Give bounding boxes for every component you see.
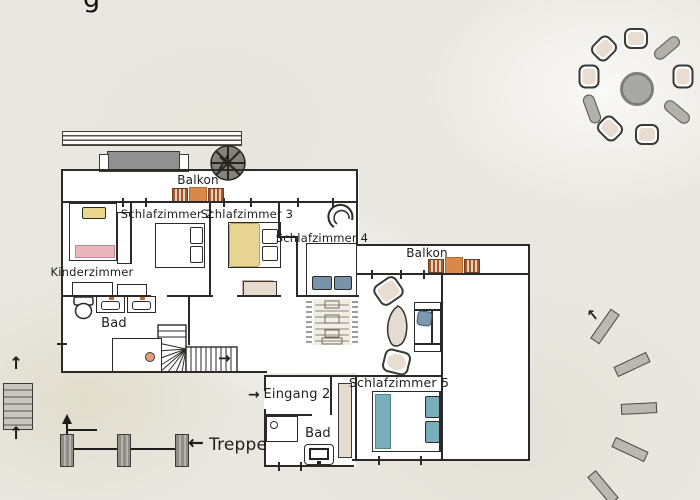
wall (528, 244, 530, 461)
window-tick (278, 462, 280, 471)
woven-rug (306, 299, 358, 345)
label-bad-lower: Bad (305, 426, 331, 441)
fence-post (175, 434, 189, 467)
s3-yellow-blanket (229, 223, 260, 267)
window-tick (145, 198, 147, 207)
label-schlafzimmer-3: Schlafzimmer 3 (201, 207, 293, 221)
wall (61, 371, 267, 373)
label-schlafzimmer-2: Schlafzimmer 2 (121, 207, 213, 221)
s5-pillow-1 (425, 396, 440, 418)
s2-pillow-2 (190, 246, 203, 263)
wall (296, 295, 359, 297)
s5-pillow-2 (425, 421, 440, 443)
window-tick (378, 456, 380, 465)
wardrobe (338, 383, 352, 458)
garden-chair (579, 65, 600, 89)
window-tick (250, 198, 252, 207)
s4-pillow-1 (312, 276, 332, 290)
s3-pillow-2 (262, 246, 278, 261)
corner-chair-icon (328, 205, 352, 227)
window-tick (223, 198, 225, 207)
label-schlafzimmer-5: Schlafzimmer 5 (349, 375, 449, 390)
bath-cabinet-1 (72, 282, 113, 296)
newel-post (145, 352, 155, 362)
treppe-arrow-icon: ← (188, 434, 204, 453)
balcony-bench-right (208, 188, 224, 202)
s5-teal-runner (375, 394, 391, 449)
label-bad-upper: Bad (101, 316, 127, 331)
wall (296, 236, 298, 297)
window-tick (423, 270, 425, 279)
window-tick (57, 343, 67, 345)
label-eingang-2: Eingang 2 (264, 387, 331, 402)
teardrop-seat (388, 306, 407, 346)
sink-1 (96, 296, 125, 313)
wall (61, 169, 358, 171)
wall (167, 295, 213, 297)
balcony-bench-left (172, 188, 188, 202)
wall (237, 295, 281, 297)
shower-knob (270, 421, 278, 429)
garden-chair (624, 28, 648, 49)
garden-table (620, 72, 654, 106)
exterior-staircase (3, 383, 33, 430)
label-balkon-upper: Balkon (177, 173, 219, 187)
toilet-icon (74, 297, 93, 319)
s4-pillow-2 (334, 276, 352, 290)
label-balkon-wing: Balkon (406, 246, 448, 260)
window-tick (400, 270, 402, 279)
fence-rail (131, 448, 175, 450)
garden-chair (635, 124, 659, 145)
desk-bottom-shelf (414, 343, 441, 345)
sink-2 (127, 296, 156, 313)
wall (357, 273, 530, 275)
label-treppe: Treppe (209, 435, 267, 455)
window-tick (300, 462, 302, 471)
label-kinderzimmer: Kinderzimmer (51, 265, 134, 279)
window-tick (122, 198, 124, 207)
fence-post (117, 434, 131, 467)
stepping-stone (621, 402, 658, 415)
window-tick (420, 456, 422, 465)
wall (61, 295, 151, 297)
desk-chair (416, 310, 433, 327)
exterior-stair-arrow-upper-icon: ↑ (9, 356, 23, 373)
wall (265, 414, 312, 416)
window-tick (371, 270, 373, 279)
eingang-arrow-icon: → (248, 388, 260, 402)
garden-chair (673, 65, 694, 89)
wall (441, 273, 443, 461)
floor-plan-canvas: g (0, 0, 700, 500)
wing-bench-right (464, 259, 480, 273)
kinderzimmer-pillow (82, 207, 106, 219)
s2-pillow-1 (190, 227, 203, 244)
label-schlafzimmer-4: Schlafzimmer 4 (276, 231, 368, 245)
shower-tray (266, 416, 298, 442)
window-tick (332, 198, 334, 207)
fence-rail (74, 448, 117, 450)
wall (188, 295, 190, 345)
washbasin-unit (304, 444, 334, 465)
fence-post (60, 434, 74, 467)
exterior-stair-arrow-lower-icon: ↑ (9, 426, 23, 443)
stair-exit-arrow-icon: → (218, 351, 231, 366)
kinderzimmer-blanket (75, 245, 115, 258)
wing-bench-left (428, 259, 444, 273)
window-tick (297, 198, 299, 207)
